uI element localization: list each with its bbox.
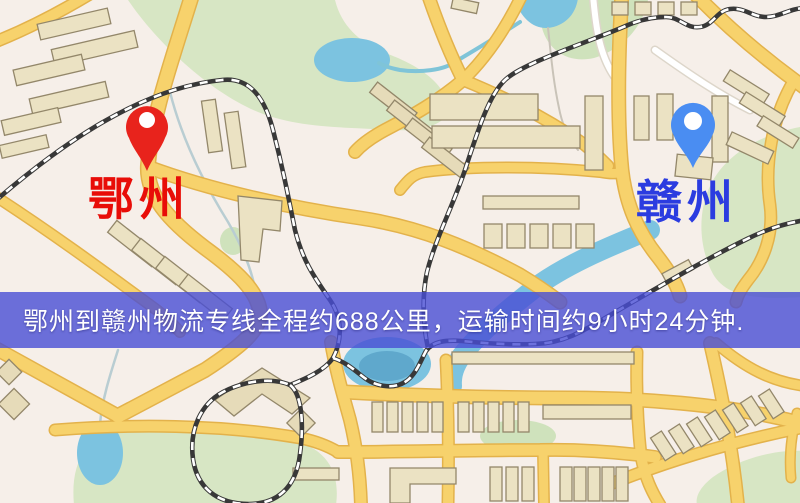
destination-city-label: 赣州 — [636, 179, 738, 225]
origin-city-label: 鄂州 — [88, 176, 190, 222]
map-image — [0, 0, 800, 503]
route-banner: 鄂州到赣州物流专线全程约688公里，运输时间约9小时24分钟. — [0, 292, 800, 348]
origin-pin-hole — [139, 112, 155, 128]
route-banner-text: 鄂州到赣州物流专线全程约688公里，运输时间约9小时24分钟. — [23, 302, 744, 338]
destination-pin-hole — [684, 112, 702, 130]
map-canvas: 鄂州 赣州 鄂州到赣州物流专线全程约688公里，运输时间约9小时24分钟. — [0, 0, 800, 503]
